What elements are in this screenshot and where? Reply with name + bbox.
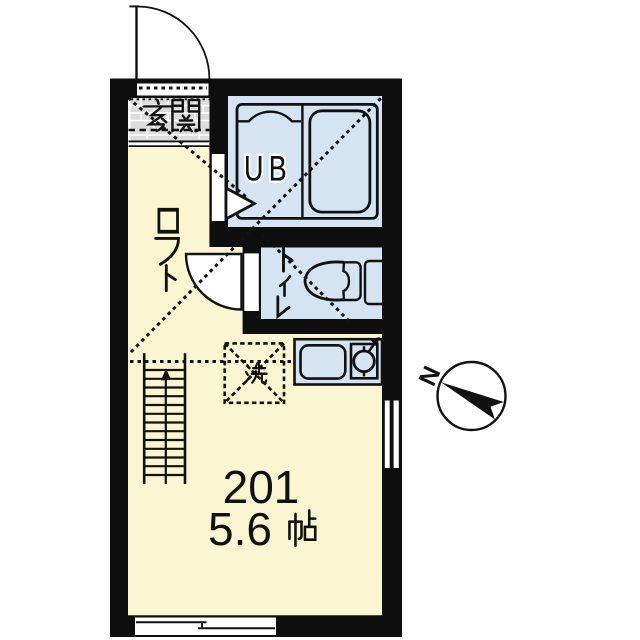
- svg-text:5.6: 5.6: [208, 503, 272, 555]
- svg-text:UB: UB: [244, 150, 292, 189]
